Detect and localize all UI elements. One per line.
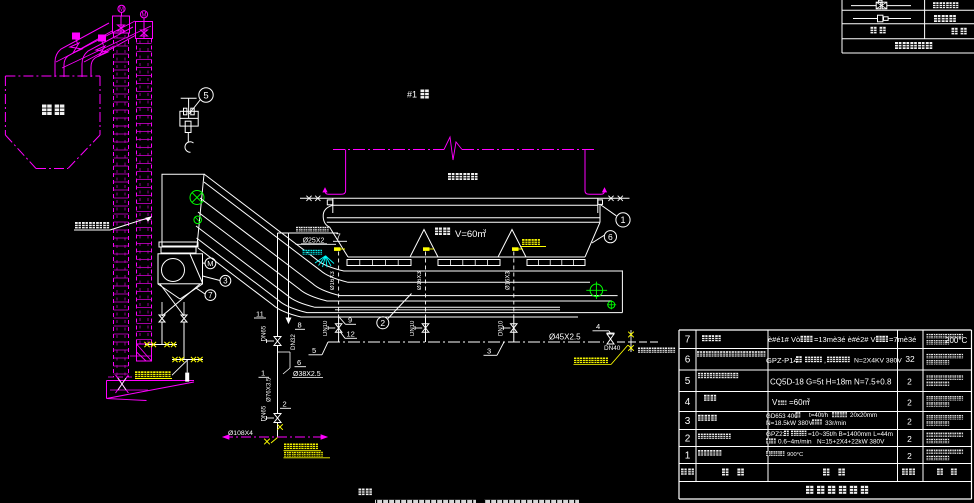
svg-text:t=40t/h: t=40t/h bbox=[809, 412, 829, 419]
svg-text:12: 12 bbox=[347, 330, 355, 339]
svg-text:Ø45X2.5: Ø45X2.5 bbox=[549, 333, 581, 342]
svg-text:7: 7 bbox=[685, 335, 691, 346]
svg-text:32: 32 bbox=[905, 354, 915, 364]
svg-text:8: 8 bbox=[298, 321, 302, 330]
svg-text:DN10: DN10 bbox=[323, 320, 329, 336]
svg-text:DN10: DN10 bbox=[410, 320, 416, 336]
svg-text:=13mè3é è#é2# Vò: =13mè3é è#é2# Vò bbox=[814, 335, 880, 344]
svg-text:=7mè3é: =7mè3é bbox=[889, 335, 916, 344]
svg-text:2: 2 bbox=[907, 416, 912, 426]
svg-text:N=18.5kW 380V: N=18.5kW 380V bbox=[766, 420, 813, 427]
svg-text:N=15+2X4+22kW 380V: N=15+2X4+22kW 380V bbox=[817, 438, 885, 445]
svg-text:M: M bbox=[207, 259, 213, 268]
svg-text:GPZ-P14: GPZ-P14 bbox=[766, 356, 798, 365]
svg-text:GD653 400: GD653 400 bbox=[766, 413, 798, 420]
svg-text:3: 3 bbox=[807, 398, 810, 404]
svg-text:2: 2 bbox=[907, 451, 912, 461]
svg-text:1: 1 bbox=[261, 369, 265, 378]
svg-text:Ø16X3: Ø16X3 bbox=[417, 271, 423, 290]
svg-text:DN40: DN40 bbox=[604, 345, 621, 352]
svg-text:900°C: 900°C bbox=[787, 452, 803, 458]
svg-text:Ø108X4: Ø108X4 bbox=[228, 430, 253, 437]
svg-text:5: 5 bbox=[203, 90, 208, 101]
svg-text:33r/min: 33r/min bbox=[825, 420, 847, 427]
svg-text:#1: #1 bbox=[407, 90, 417, 100]
svg-text:DN10: DN10 bbox=[498, 320, 504, 336]
svg-text:2: 2 bbox=[283, 400, 287, 409]
svg-text:200°C: 200°C bbox=[945, 336, 968, 345]
svg-text:6: 6 bbox=[608, 232, 613, 242]
svg-text:4: 4 bbox=[596, 322, 600, 331]
svg-text:3: 3 bbox=[685, 416, 691, 427]
svg-text:M: M bbox=[119, 7, 124, 13]
svg-text:DN32: DN32 bbox=[290, 334, 297, 350]
svg-text:3: 3 bbox=[223, 277, 228, 286]
svg-text:11: 11 bbox=[256, 310, 264, 319]
svg-text:CQ5D-18 G=5t H=18m N=7.5+0.8: CQ5D-18 G=5t H=18m N=7.5+0.8 bbox=[770, 378, 892, 387]
svg-text:Ø25X2: Ø25X2 bbox=[303, 237, 325, 244]
svg-text:5: 5 bbox=[685, 376, 691, 387]
svg-text:V=60m: V=60m bbox=[455, 229, 485, 240]
svg-text:1: 1 bbox=[685, 450, 691, 461]
svg-text:2: 2 bbox=[907, 434, 912, 444]
svg-text:Ø16X3: Ø16X3 bbox=[330, 271, 336, 290]
svg-text:V: V bbox=[772, 398, 778, 407]
svg-text:,: , bbox=[824, 357, 826, 364]
svg-text:Ø38X2.5: Ø38X2.5 bbox=[293, 371, 321, 378]
svg-text:7: 7 bbox=[208, 291, 213, 300]
svg-text:2: 2 bbox=[380, 318, 385, 328]
svg-text:6: 6 bbox=[297, 358, 301, 367]
svg-text:5: 5 bbox=[312, 346, 316, 355]
svg-text:Ø76X3.5: Ø76X3.5 bbox=[266, 377, 273, 402]
svg-text:2: 2 bbox=[907, 397, 912, 407]
svg-text:Ø16X3: Ø16X3 bbox=[505, 271, 511, 290]
svg-text:M: M bbox=[142, 13, 147, 19]
svg-text:=10~35t/h B=1400mm L=44m: =10~35t/h B=1400mm L=44m bbox=[808, 431, 893, 438]
svg-text:9: 9 bbox=[348, 316, 352, 325]
svg-text:4: 4 bbox=[685, 397, 691, 408]
svg-text:20x20mm: 20x20mm bbox=[850, 412, 877, 419]
svg-text:GPZ23: GPZ23 bbox=[766, 431, 787, 438]
svg-text:6: 6 bbox=[685, 355, 691, 366]
svg-text:0.6~4m/min: 0.6~4m/min bbox=[778, 438, 812, 445]
svg-text:2: 2 bbox=[907, 377, 912, 387]
svg-text:1: 1 bbox=[620, 215, 625, 225]
svg-text:2: 2 bbox=[685, 433, 691, 444]
svg-text:è#é1# Vò: è#é1# Vò bbox=[768, 335, 800, 344]
svg-text:3: 3 bbox=[487, 347, 491, 356]
svg-text:N=2X4KV 380V: N=2X4KV 380V bbox=[854, 357, 902, 364]
